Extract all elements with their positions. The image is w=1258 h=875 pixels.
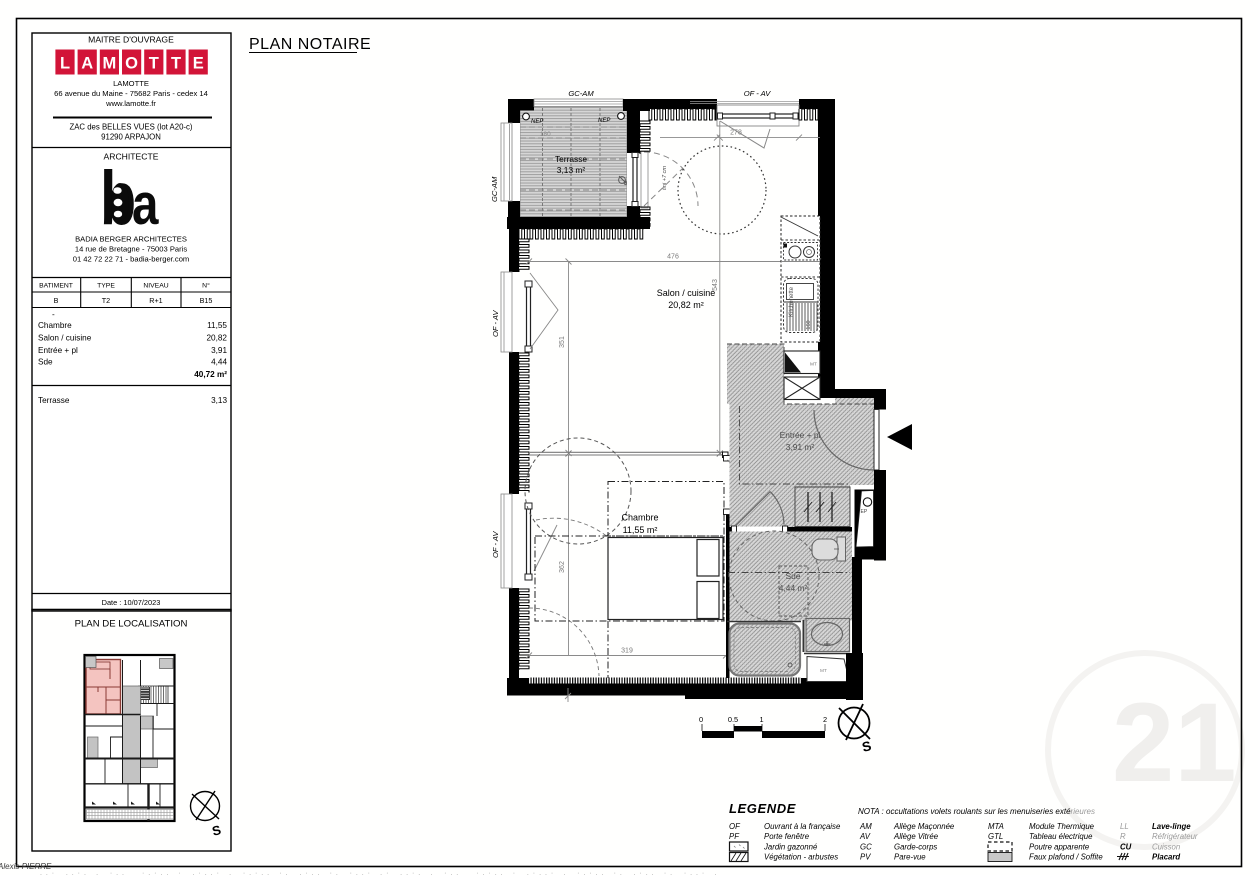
svg-text:Faux plafond / Soffite: Faux plafond / Soffite bbox=[1029, 853, 1103, 862]
svg-text:AM: AM bbox=[859, 822, 872, 831]
svg-text:Terrasse: Terrasse bbox=[555, 154, 587, 164]
svg-text:www.lamotte.fr: www.lamotte.fr bbox=[105, 99, 156, 108]
svg-text:Module Thermique: Module Thermique bbox=[1029, 822, 1095, 831]
svg-text:14 rue de Bretagne - 75003 Par: 14 rue de Bretagne - 75003 Paris bbox=[75, 245, 187, 254]
svg-text:Garde-corps: Garde-corps bbox=[894, 843, 937, 852]
svg-text:NOTA : occultations volets rou: NOTA : occultations volets roulants sur … bbox=[858, 807, 1095, 816]
svg-text:Salon / cuisine: Salon / cuisine bbox=[657, 288, 716, 298]
svg-text:PV: PV bbox=[860, 853, 871, 862]
svg-text:BADIA BERGER ARCHITECTES: BADIA BERGER ARCHITECTES bbox=[75, 235, 187, 244]
svg-text:a: a bbox=[132, 173, 159, 238]
svg-text:NEP: NEP bbox=[531, 119, 543, 125]
svg-text:351: 351 bbox=[559, 336, 566, 348]
svg-text:B15: B15 bbox=[200, 296, 213, 305]
svg-text:LEGENDE: LEGENDE bbox=[729, 801, 796, 816]
svg-text:EP: EP bbox=[861, 509, 868, 515]
svg-text:0.5: 0.5 bbox=[728, 715, 738, 724]
svg-text:GC-AM: GC-AM bbox=[490, 176, 499, 202]
svg-text:MAITRE D'OUVRAGE: MAITRE D'OUVRAGE bbox=[88, 35, 174, 45]
svg-text:Date : 10/07/2023: Date : 10/07/2023 bbox=[102, 598, 161, 607]
svg-text:LL: LL bbox=[1120, 822, 1129, 831]
svg-text:Allège Maçonnée: Allège Maçonnée bbox=[893, 822, 955, 831]
svg-text:Porte fenêtre: Porte fenêtre bbox=[764, 832, 810, 841]
svg-text:476: 476 bbox=[667, 254, 679, 261]
svg-text:40,72 m²: 40,72 m² bbox=[194, 370, 227, 379]
svg-text:3,13: 3,13 bbox=[211, 396, 227, 405]
svg-text:T: T bbox=[149, 55, 159, 73]
svg-text:Chambre: Chambre bbox=[38, 321, 72, 330]
svg-text:0: 0 bbox=[699, 715, 703, 724]
svg-text:A: A bbox=[81, 55, 93, 73]
svg-text:Entrée + pl: Entrée + pl bbox=[780, 430, 821, 440]
svg-text:160: 160 bbox=[806, 320, 812, 329]
svg-text:N°: N° bbox=[202, 282, 210, 290]
svg-text:11,55: 11,55 bbox=[207, 321, 227, 330]
svg-text:GC: GC bbox=[860, 843, 872, 852]
svg-text:T2: T2 bbox=[102, 296, 110, 305]
svg-text:3,13 m²: 3,13 m² bbox=[557, 165, 586, 175]
svg-text:4,44 m²: 4,44 m² bbox=[779, 583, 808, 593]
svg-text:LAMOTTE: LAMOTTE bbox=[113, 79, 149, 88]
svg-text:Végétation - arbustes: Végétation - arbustes bbox=[764, 853, 838, 862]
svg-text:. . · _ . , · . ¸ . _ · . , ¸: . . · _ . , · . ¸ . _ · . , ¸ _ · . · , … bbox=[40, 870, 717, 875]
svg-text:Pare-vue: Pare-vue bbox=[894, 853, 926, 862]
svg-text:Entrée + pl: Entrée + pl bbox=[38, 346, 78, 355]
svg-text:MT: MT bbox=[810, 362, 817, 368]
svg-text:R+1: R+1 bbox=[149, 296, 162, 305]
svg-text:TYPE: TYPE bbox=[97, 283, 115, 290]
svg-text:E: E bbox=[193, 55, 204, 73]
svg-text:180: 180 bbox=[540, 131, 551, 138]
svg-text:Allège Vitrée: Allège Vitrée bbox=[893, 832, 939, 841]
svg-text:OF - AV: OF - AV bbox=[744, 89, 772, 98]
svg-text:CU: CU bbox=[1120, 843, 1132, 852]
svg-text:Sde: Sde bbox=[38, 358, 53, 367]
svg-text:91290 ARPAJON: 91290 ARPAJON bbox=[101, 133, 161, 142]
svg-text:20,82: 20,82 bbox=[207, 334, 228, 343]
svg-text:L: L bbox=[60, 55, 70, 73]
svg-text:11,55 m²: 11,55 m² bbox=[623, 525, 658, 535]
svg-text:T: T bbox=[171, 55, 181, 73]
svg-text:2: 2 bbox=[823, 715, 827, 724]
svg-text:PLAN NOTAIRE: PLAN NOTAIRE bbox=[249, 36, 371, 53]
svg-text:01 42 72 22 71 - badia-berger.: 01 42 72 22 71 - badia-berger.com bbox=[73, 255, 190, 264]
svg-text:21: 21 bbox=[1112, 680, 1237, 805]
svg-text:-: - bbox=[52, 310, 55, 319]
svg-text:OF - AV: OF - AV bbox=[491, 530, 500, 558]
svg-text:PF: PF bbox=[729, 832, 740, 841]
svg-text:OF: OF bbox=[729, 822, 741, 831]
svg-text:3,91 m²: 3,91 m² bbox=[786, 442, 815, 452]
svg-text:Salon / cuisine: Salon / cuisine bbox=[38, 334, 92, 343]
svg-text:OF - AV: OF - AV bbox=[491, 309, 500, 337]
svg-text:B: B bbox=[54, 296, 59, 305]
svg-text:Jardin gazonné: Jardin gazonné bbox=[763, 843, 818, 852]
svg-text:319: 319 bbox=[621, 648, 633, 655]
svg-text:Chambre: Chambre bbox=[621, 513, 658, 523]
svg-text:20,82 m²: 20,82 m² bbox=[668, 300, 704, 310]
svg-text:fini +7 cm: fini +7 cm bbox=[662, 166, 668, 190]
svg-text:MTA: MTA bbox=[988, 822, 1004, 831]
svg-text:Lave-linge: Lave-linge bbox=[1152, 822, 1191, 831]
svg-text:S: S bbox=[860, 738, 872, 755]
svg-text:NEP: NEP bbox=[598, 118, 610, 124]
svg-text:278: 278 bbox=[730, 130, 742, 137]
svg-text:R: R bbox=[1120, 832, 1126, 841]
svg-text:AV: AV bbox=[859, 832, 871, 841]
svg-text:66 avenue du Maine - 75682 Par: 66 avenue du Maine - 75682 Paris - cedex… bbox=[54, 89, 208, 98]
svg-text:O: O bbox=[125, 55, 138, 73]
svg-text:Kitchenette: Kitchenette bbox=[789, 286, 795, 317]
svg-text:543: 543 bbox=[712, 279, 719, 291]
svg-text:Sde: Sde bbox=[786, 571, 801, 581]
svg-text:Tableau électrique: Tableau électrique bbox=[1029, 832, 1093, 841]
svg-text:S: S bbox=[210, 822, 222, 839]
svg-text:Placard: Placard bbox=[1152, 853, 1180, 862]
svg-text:ZAC des BELLES VUES (lot A20-c: ZAC des BELLES VUES (lot A20-c) bbox=[69, 123, 192, 132]
svg-text:GTL: GTL bbox=[988, 832, 1003, 841]
svg-text:M: M bbox=[103, 55, 117, 73]
svg-text:3,91: 3,91 bbox=[211, 346, 227, 355]
svg-text:Poutre apparente: Poutre apparente bbox=[1029, 843, 1090, 852]
svg-text:Ouvrant à la française: Ouvrant à la française bbox=[764, 822, 841, 831]
svg-text:PLAN DE LOCALISATION: PLAN DE LOCALISATION bbox=[75, 619, 188, 630]
svg-text:362: 362 bbox=[559, 561, 566, 573]
svg-text:1: 1 bbox=[759, 715, 763, 724]
svg-text:Réfrigérateur: Réfrigérateur bbox=[1152, 832, 1198, 841]
svg-text:BATIMENT: BATIMENT bbox=[39, 283, 73, 290]
svg-text:Cuisson: Cuisson bbox=[1152, 843, 1180, 852]
svg-text:4,44: 4,44 bbox=[211, 358, 227, 367]
svg-text:MT: MT bbox=[820, 668, 827, 674]
svg-text:Terrasse: Terrasse bbox=[38, 396, 70, 405]
svg-text:NIVEAU: NIVEAU bbox=[143, 283, 168, 290]
svg-text:GC-AM: GC-AM bbox=[568, 89, 594, 98]
